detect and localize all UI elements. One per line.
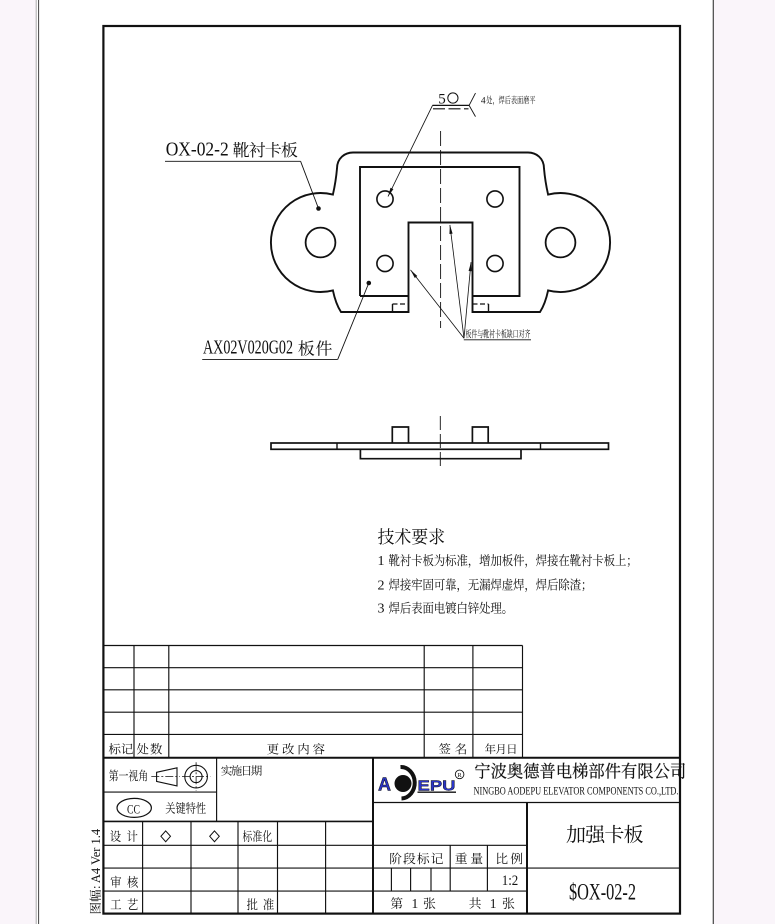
svg-text:OX-02-2: OX-02-2 (166, 138, 229, 160)
svg-text:4: 4 (481, 97, 486, 107)
svg-text:NINGBO AODEPU ELEVATOR COMPONE: NINGBO AODEPU ELEVATOR COMPONENTS CO.,LT… (474, 783, 679, 797)
svg-text:R: R (457, 772, 462, 779)
svg-text:: A4 Ver 1.4: : A4 Ver 1.4 (89, 828, 103, 889)
svg-text:2: 2 (378, 578, 385, 593)
svg-text:AX02V020G02: AX02V020G02 (203, 337, 293, 359)
svg-text:A: A (378, 775, 391, 795)
svg-text:1: 1 (490, 896, 497, 911)
svg-text:3: 3 (378, 602, 385, 617)
svg-text:CC: CC (127, 801, 140, 816)
svg-text:1: 1 (378, 554, 385, 569)
svg-text:1:2: 1:2 (502, 873, 519, 889)
svg-text:1: 1 (412, 896, 419, 911)
svg-text:$OX-02-2: $OX-02-2 (569, 880, 636, 905)
